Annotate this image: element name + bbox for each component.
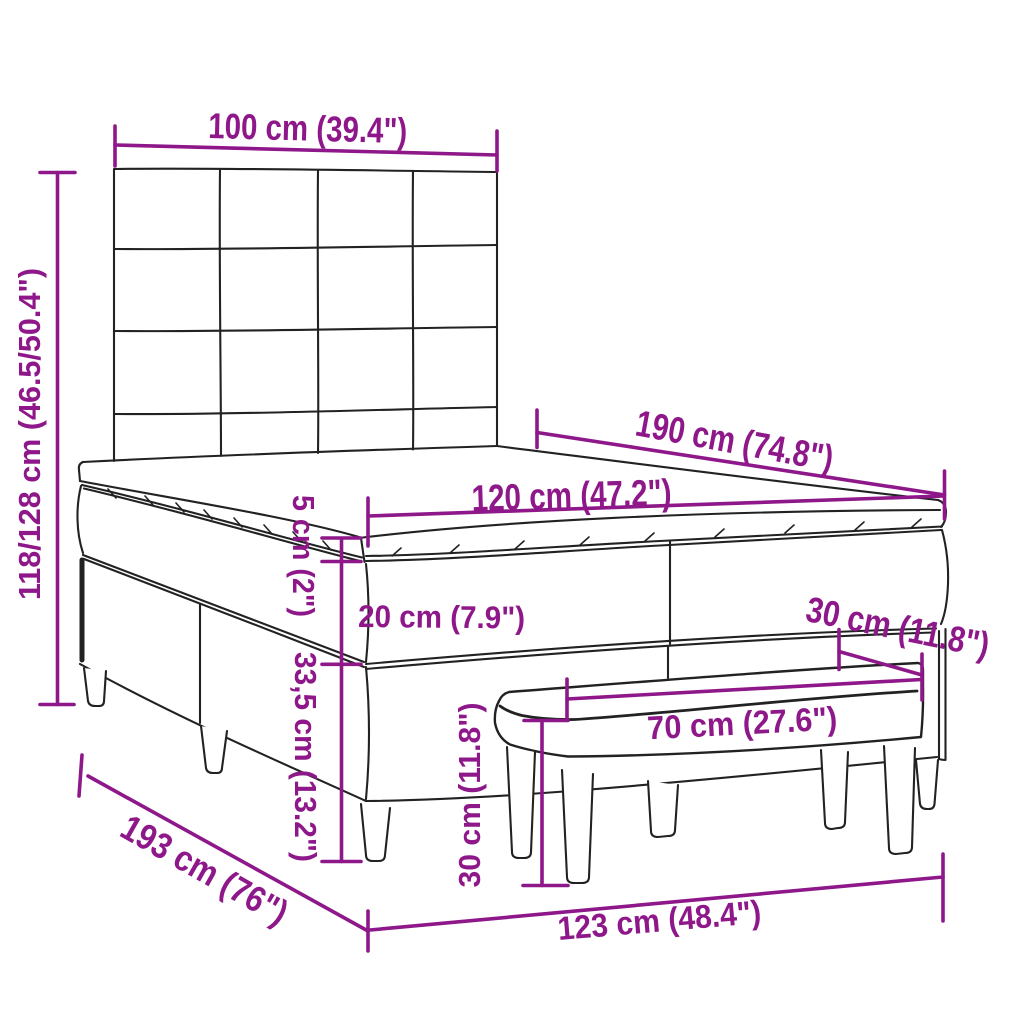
svg-text:20 cm (7.9"): 20 cm (7.9") [358,598,525,635]
svg-text:30 cm (11.8"): 30 cm (11.8") [452,703,487,888]
svg-text:5 cm (2"): 5 cm (2") [286,495,321,617]
svg-text:118/128 cm (46.5/50.4"): 118/128 cm (46.5/50.4") [12,268,47,600]
svg-text:100 cm (39.4"): 100 cm (39.4") [208,105,408,151]
svg-text:120 cm (47.2"): 120 cm (47.2") [471,472,672,519]
svg-text:33,5 cm (13.2"): 33,5 cm (13.2") [288,652,323,862]
